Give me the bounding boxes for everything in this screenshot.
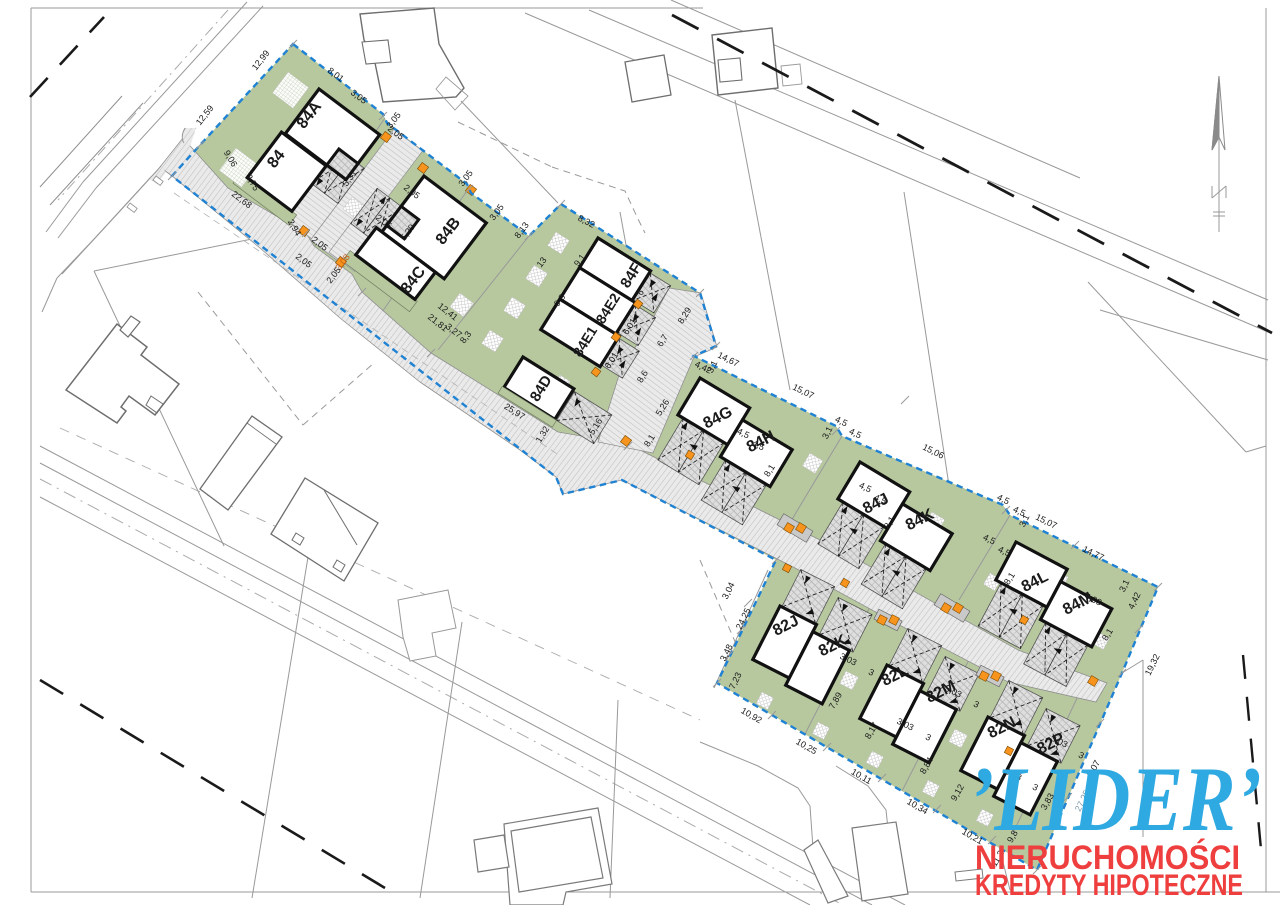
svg-text:KREDYTY HIPOTECZNE: KREDYTY HIPOTECZNE <box>975 869 1243 902</box>
svg-text:’LIDER’: ’LIDER’ <box>968 748 1262 850</box>
